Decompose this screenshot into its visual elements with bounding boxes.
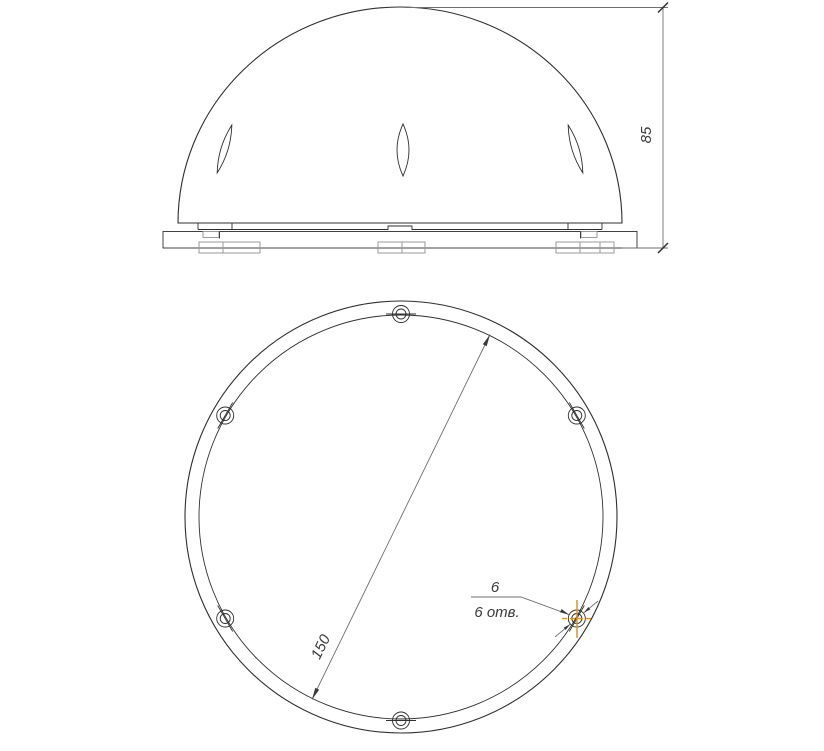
screw-hole-upper-right xyxy=(568,403,585,429)
hole-diameter-label: 6 xyxy=(491,579,500,596)
height-dimension-label: 85 xyxy=(638,126,655,143)
screw-hole-top xyxy=(386,306,416,323)
screw-hole-upper-left xyxy=(217,403,234,429)
hole-count-label: 6 отв. xyxy=(474,604,519,621)
hole-callout: 6 6 отв. xyxy=(471,579,598,637)
latch-tab-right xyxy=(581,232,597,238)
drawing-sheet: 85 xyxy=(0,0,824,751)
latch-tab-left xyxy=(203,232,219,238)
dimension-arrow-top xyxy=(483,335,490,347)
mounting-feet xyxy=(199,242,614,253)
base-plate xyxy=(163,232,637,249)
foot-left xyxy=(199,242,260,253)
screw-hole-lower-left xyxy=(217,606,234,632)
vent-slot-left xyxy=(214,124,235,174)
front-view: 85 xyxy=(163,3,668,254)
drawing-canvas[interactable]: 85 xyxy=(0,0,824,751)
foot-right xyxy=(556,242,614,253)
diameter-dimension-line xyxy=(312,335,490,700)
plan-view: 150 6 6 отв. xyxy=(185,301,617,733)
callout-leader-arrow xyxy=(560,609,569,615)
dome-rim-line xyxy=(198,226,602,230)
foot-right-dividers xyxy=(580,242,600,253)
vent-slot-middle xyxy=(397,124,409,176)
bolt-circle-dimension-label: 150 xyxy=(308,631,335,662)
height-dimension: 85 xyxy=(405,3,668,254)
dome-outline xyxy=(178,7,622,223)
dimension-arrow-bottom xyxy=(312,688,319,700)
latch-tab-edges xyxy=(220,232,581,239)
bolt-circle-dimension: 150 xyxy=(308,335,490,700)
screw-hole-bottom xyxy=(386,712,416,729)
vent-slot-right xyxy=(565,124,586,174)
